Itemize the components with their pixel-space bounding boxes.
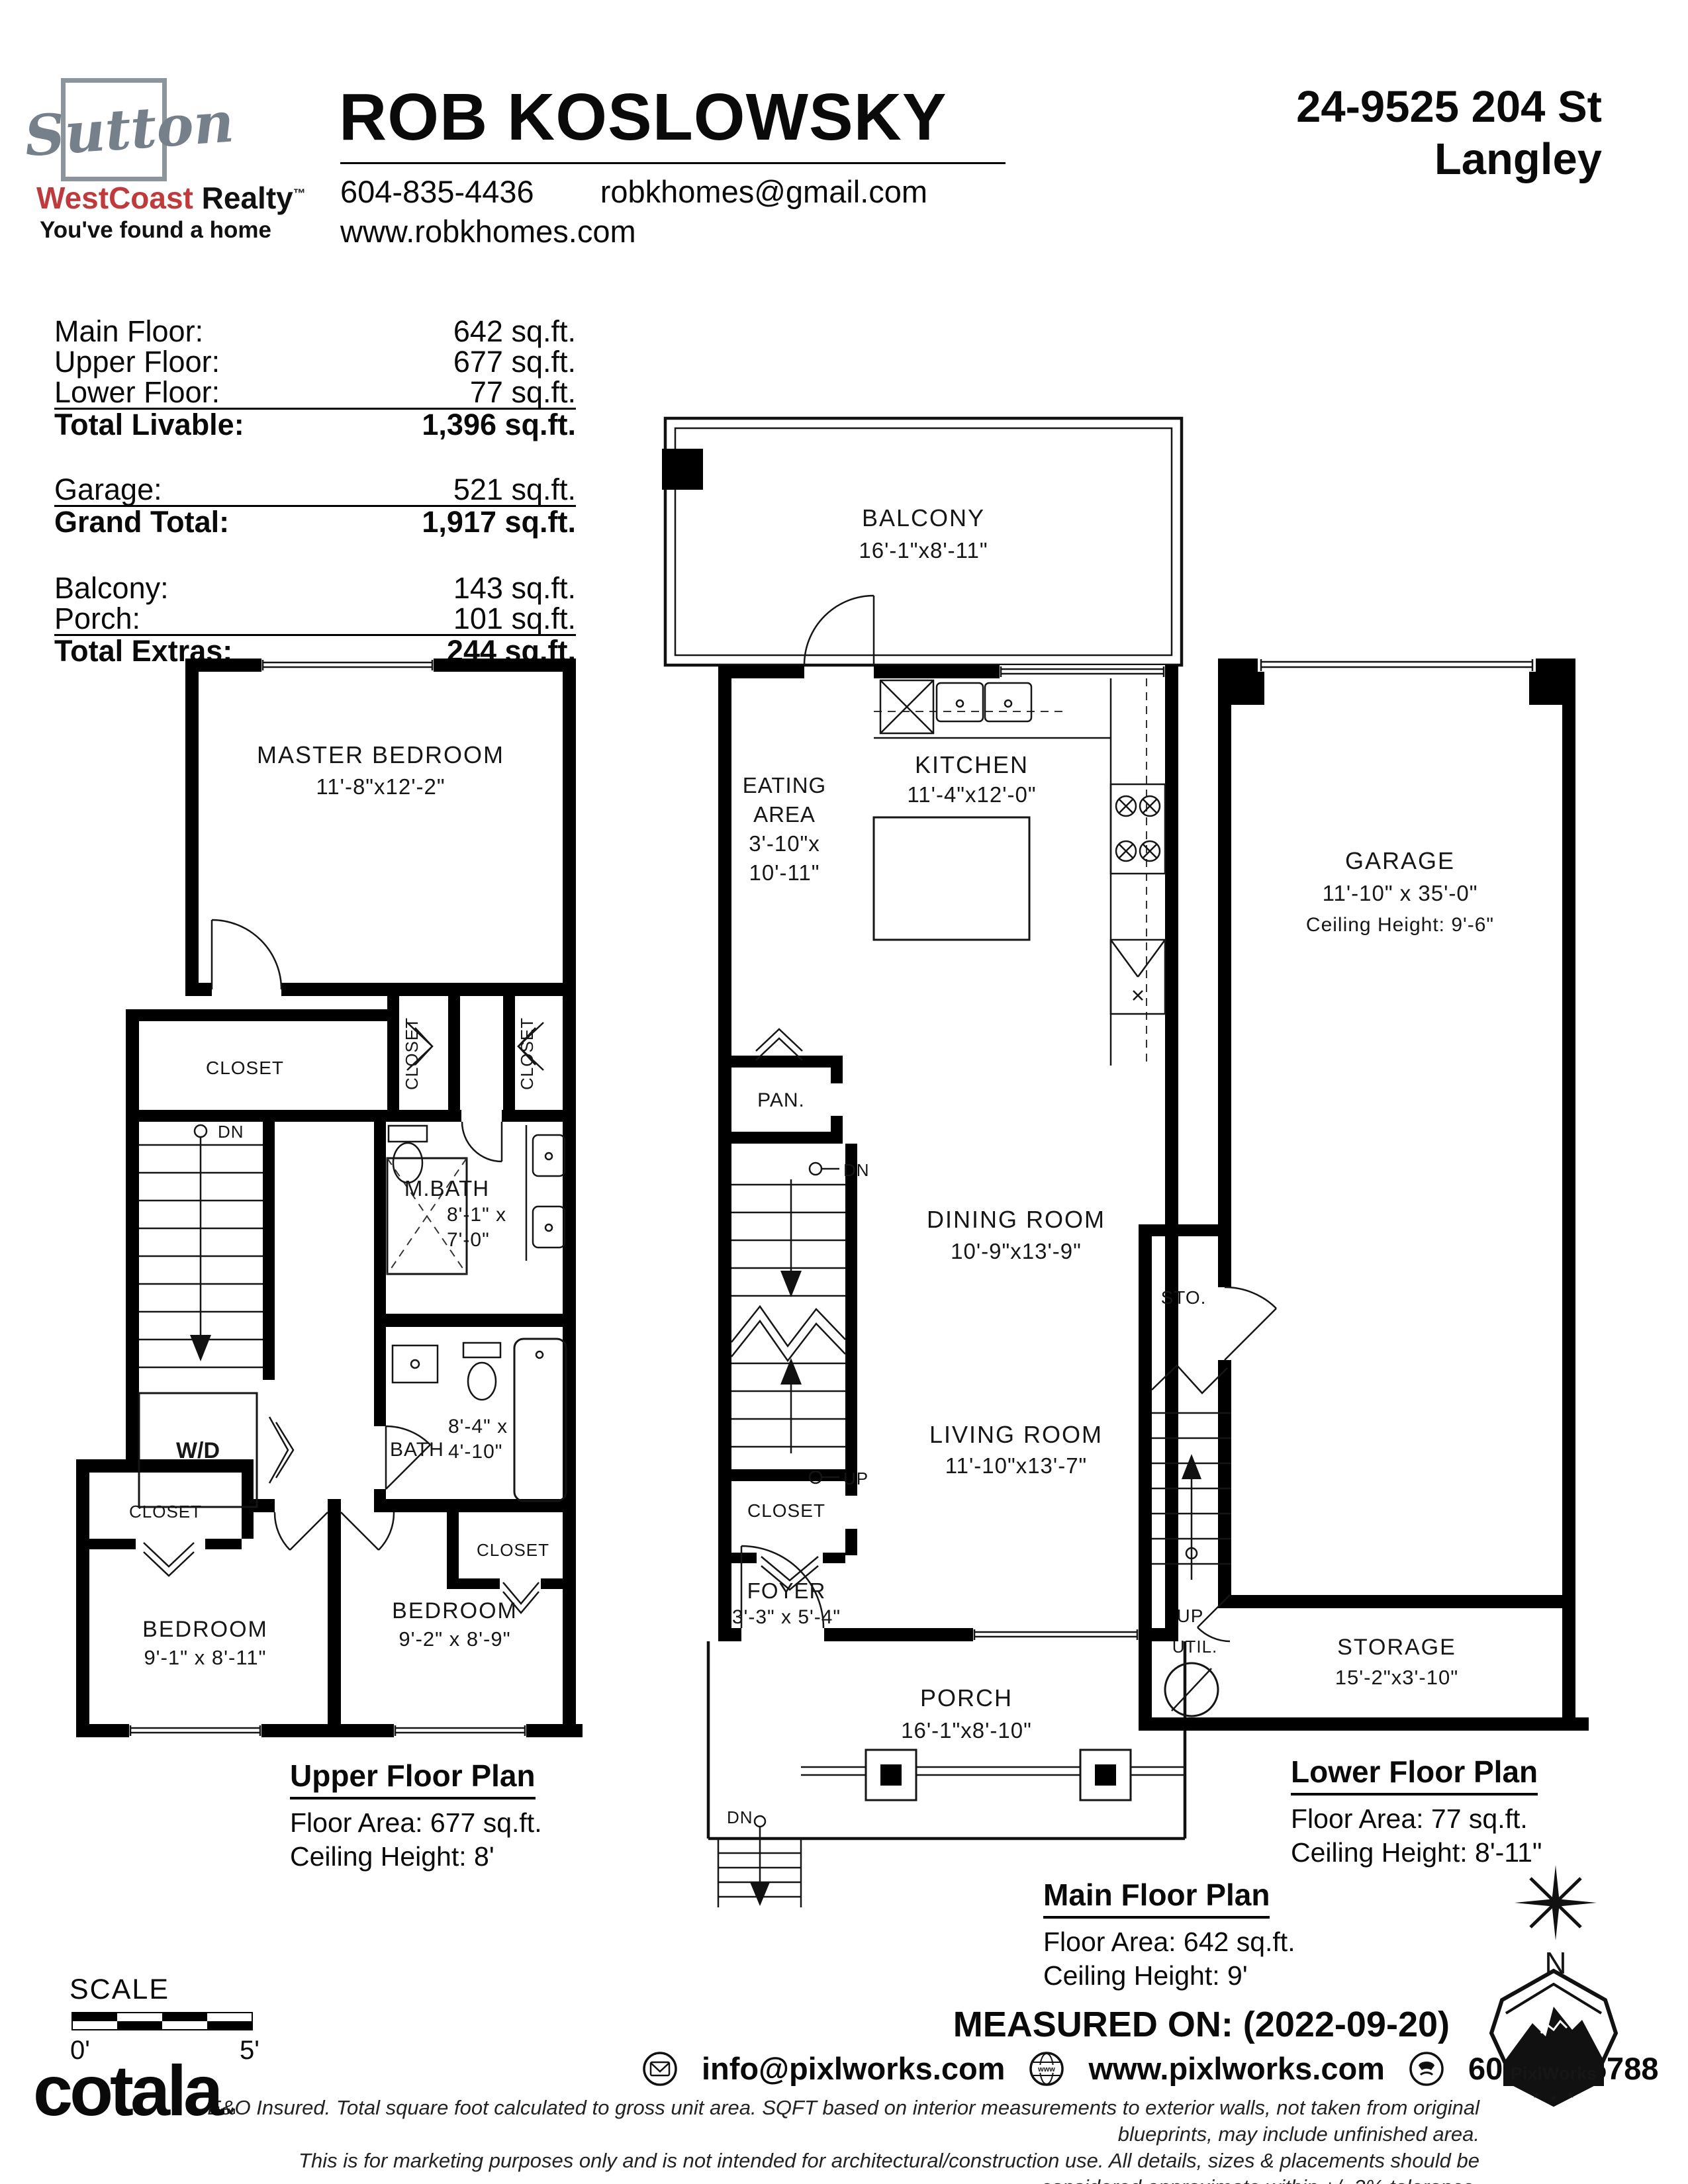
room-dims-balcony: 16'-1"x8'-11" xyxy=(859,538,988,563)
washer-dryer-label: W/D xyxy=(176,1438,220,1463)
disclaimer-line2: This is for marketing purposes only and … xyxy=(199,2148,1479,2184)
room-dims-living: 11'-10"x13'-7" xyxy=(945,1453,1088,1478)
room-label-storage-nook: STO. xyxy=(1161,1287,1207,1308)
area-value: 642 sq.ft. xyxy=(453,316,576,347)
brokerage-name-black: Realty xyxy=(193,181,293,215)
room-dims-bedroom-left: 9'-1" x 8'-11" xyxy=(144,1646,266,1669)
area-value: 77 sq.ft. xyxy=(470,377,576,408)
room-label-mbath: M.BATH xyxy=(404,1176,489,1201)
lower-floor-plan-drawing: UP GARAGE 11'-10" x 35'-0" Ceiling Heigh… xyxy=(1139,659,1589,1744)
badge-star: ★ xyxy=(1566,2089,1575,2101)
lower-plan-title: Lower Floor Plan xyxy=(1291,1754,1538,1796)
main-floor-plan-drawing: DN UP DN BALCONY 16'-1"x8'-11" KITCHEN 1… xyxy=(655,410,1192,1919)
room-label-pantry: PAN. xyxy=(757,1089,805,1111)
area-label: Garage: xyxy=(54,475,162,505)
lower-plan-area: Floor Area: 77 sq.ft. xyxy=(1291,1802,1542,1836)
room-label-kitchen: KITCHEN xyxy=(915,751,1029,778)
floorplan-flyer: Sutton WestCoast Realty™ You've found a … xyxy=(0,0,1688,2184)
upper-plan-ceiling: Ceiling Height: 8' xyxy=(290,1840,542,1874)
address-line1: 24-9525 204 St xyxy=(1231,81,1602,133)
area-value: 1,396 sq.ft. xyxy=(422,410,576,440)
area-label: Porch: xyxy=(54,604,140,634)
main-windows xyxy=(973,665,1165,1641)
agent-contact-row: 604-835-4436 robkhomes@gmail.com xyxy=(340,173,927,210)
footer-email: info@pixlworks.com xyxy=(702,2050,1005,2087)
room-dims-master: 11'-8"x12'-2" xyxy=(316,774,445,799)
area-label: Main Floor: xyxy=(54,316,203,347)
brokerage-name-red: WestCoast xyxy=(36,181,193,215)
badge-star: ★ xyxy=(1532,2089,1540,2101)
phone-icon xyxy=(1409,2051,1444,2087)
main-stairs xyxy=(731,1163,845,1483)
room-label-dining: DINING ROOM xyxy=(927,1206,1105,1233)
area-row-porch: Porch: 101 sq.ft. xyxy=(54,604,576,634)
svg-text:www: www xyxy=(1038,2066,1056,2073)
stair-label-dn: DN xyxy=(727,1807,753,1827)
lower-plan-caption: Lower Floor Plan Floor Area: 77 sq.ft. C… xyxy=(1291,1754,1542,1870)
room-dims-mbath2: 7'-0" xyxy=(447,1229,490,1251)
room-label-closet: CLOSET xyxy=(402,1017,422,1090)
area-row-lower: Lower Floor: 77 sq.ft. xyxy=(54,377,576,408)
upper-plan-area: Floor Area: 677 sq.ft. xyxy=(290,1806,542,1840)
main-plan-ceiling: Ceiling Height: 9' xyxy=(1043,1959,1295,1993)
upper-plan-title: Upper Floor Plan xyxy=(290,1758,536,1799)
room-dims-eating2: 10'-11" xyxy=(749,860,820,885)
room-label-foyer: FOYER xyxy=(747,1578,826,1603)
area-label: Total Livable: xyxy=(54,410,244,440)
lower-plan-ceiling: Ceiling Height: 8'-11" xyxy=(1291,1836,1542,1870)
trademark-symbol: ™ xyxy=(293,187,306,201)
room-dims-eating1: 3'-10"x xyxy=(749,831,820,856)
room-dims-storage: 15'-2"x3'-10" xyxy=(1335,1666,1458,1689)
measured-on: MEASURED ON: (2022-09-20) xyxy=(861,2004,1450,2045)
brokerage-name: WestCoast Realty™ xyxy=(36,180,306,216)
lower-walls xyxy=(1139,659,1589,1731)
agent-phone: 604-835-4436 xyxy=(340,173,534,210)
room-label-closet: CLOSET xyxy=(477,1540,549,1560)
agent-email: robkhomes@gmail.com xyxy=(600,173,927,210)
room-label-bath: BATH xyxy=(390,1439,444,1461)
stair-label-dn: DN xyxy=(218,1122,244,1142)
area-value: 143 sq.ft. xyxy=(453,573,576,604)
area-value: 677 sq.ft. xyxy=(453,347,576,377)
room-dims-garage: 11'-10" x 35'-0" xyxy=(1323,881,1478,905)
upper-stairs xyxy=(139,1125,263,1367)
area-label: Balcony: xyxy=(54,573,169,604)
room-dims-bath1: 8'-4" x xyxy=(448,1416,508,1437)
room-dims-bedroom-right: 9'-2" x 8'-9" xyxy=(399,1627,510,1651)
compass-rose: N xyxy=(1511,1865,1601,1979)
disclaimer: E&O Insured. Total square foot calculate… xyxy=(199,2095,1479,2184)
area-row-main: Main Floor: 642 sq.ft. xyxy=(54,316,576,347)
room-dims-kitchen: 11'-4"x12'-0" xyxy=(907,782,1036,807)
garage-door xyxy=(1258,659,1536,672)
room-label-garage: GARAGE xyxy=(1345,847,1455,874)
room-label-master: MASTER BEDROOM xyxy=(257,741,504,768)
upper-plan-caption: Upper Floor Plan Floor Area: 677 sq.ft. … xyxy=(290,1758,542,1874)
scale-bar xyxy=(71,2012,254,2030)
area-row-grand-total: Grand Total: 1,917 sq.ft. xyxy=(54,505,576,537)
property-address: 24-9525 204 St Langley xyxy=(1231,81,1602,185)
area-value: 521 sq.ft. xyxy=(453,475,576,505)
room-dims-mbath1: 8'-1" x xyxy=(447,1204,506,1226)
room-dims-dining: 10'-9"x13'-9" xyxy=(951,1239,1082,1263)
pixlworks-badge: PixlWorks ★ ★ ★ xyxy=(1485,1967,1622,2111)
room-label-utility: UTIL. xyxy=(1172,1637,1218,1657)
stair-label-dn: DN xyxy=(843,1160,870,1180)
main-plan-caption: Main Floor Plan Floor Area: 642 sq.ft. C… xyxy=(1043,1877,1295,1993)
main-plan-title: Main Floor Plan xyxy=(1043,1877,1270,1919)
area-row-garage: Garage: 521 sq.ft. xyxy=(54,475,576,505)
room-label-closet: CLOSET xyxy=(206,1058,284,1078)
water-tank-icon xyxy=(1165,1663,1218,1716)
stair-label-up: UP xyxy=(1177,1606,1204,1626)
room-label-closet: CLOSET xyxy=(747,1500,825,1521)
cotala-logo: cotala™ xyxy=(33,2049,237,2132)
area-summary-table: Main Floor: 642 sq.ft. Upper Floor: 677 … xyxy=(54,316,576,666)
stair-label-up: UP xyxy=(843,1469,868,1488)
lower-doors xyxy=(1197,1287,1276,1641)
scale-label: SCALE xyxy=(70,1974,169,2006)
kitchen-island xyxy=(874,817,1029,940)
room-label-storage: STORAGE xyxy=(1337,1635,1456,1660)
agent-website: www.robkhomes.com xyxy=(340,213,636,250)
garage-ceiling-note: Ceiling Height: 9'-6" xyxy=(1306,914,1494,936)
brokerage-tagline: You've found a home xyxy=(40,217,271,244)
area-value: 101 sq.ft. xyxy=(453,604,576,634)
sutton-logo-word: Sutton xyxy=(23,91,205,169)
entry-steps xyxy=(718,1816,801,1907)
area-label: Grand Total: xyxy=(54,507,229,537)
badge-star: ★ xyxy=(1549,2093,1558,2104)
room-label-balcony: BALCONY xyxy=(862,504,985,531)
agent-name: ROB KOSLOWSKY xyxy=(339,79,947,156)
globe-icon: www xyxy=(1029,2051,1064,2087)
area-row-upper: Upper Floor: 677 sq.ft. xyxy=(54,347,576,377)
scale-end: 5' xyxy=(240,2036,259,2066)
pixlworks-badge-name: PixlWorks xyxy=(1511,2064,1597,2083)
agent-rule xyxy=(340,162,1006,164)
area-value: 1,917 sq.ft. xyxy=(422,507,576,537)
room-label-closet: CLOSET xyxy=(517,1017,537,1090)
area-label: Upper Floor: xyxy=(54,347,220,377)
room-label-closet: CLOSET xyxy=(129,1502,202,1522)
main-plan-area: Floor Area: 642 sq.ft. xyxy=(1043,1925,1295,1959)
room-dims-porch: 16'-1"x8'-10" xyxy=(901,1718,1032,1743)
sutton-logo: Sutton xyxy=(61,78,167,181)
room-label-bedroom-left: BEDROOM xyxy=(142,1617,268,1642)
upper-floor-plan-drawing: DN W/D MASTER BEDROOM 11'-8"x12'-2" CLOS… xyxy=(76,659,583,1741)
area-label: Lower Floor: xyxy=(54,377,220,408)
room-dims-foyer: 3'-3" x 5'-4" xyxy=(732,1606,841,1628)
cotala-word: cotala xyxy=(33,2050,220,2130)
upper-walls xyxy=(76,659,583,1737)
disclaimer-line1: E&O Insured. Total square foot calculate… xyxy=(199,2095,1479,2148)
email-icon xyxy=(642,2051,678,2087)
area-row-total-livable: Total Livable: 1,396 sq.ft. xyxy=(54,408,576,440)
room-label-bedroom-right: BEDROOM xyxy=(392,1598,518,1623)
area-row-balcony: Balcony: 143 sq.ft. xyxy=(54,573,576,604)
room-label-porch: PORCH xyxy=(920,1684,1013,1711)
room-label-living: LIVING ROOM xyxy=(929,1421,1103,1448)
footer-website: www.pixlworks.com xyxy=(1088,2050,1385,2087)
room-dims-bath2: 4'-10" xyxy=(448,1441,502,1463)
room-label-eating2: AREA xyxy=(753,802,816,827)
address-line2: Langley xyxy=(1231,133,1602,185)
cotala-tm: ™ xyxy=(220,2105,237,2124)
room-label-eating1: EATING xyxy=(743,773,826,797)
